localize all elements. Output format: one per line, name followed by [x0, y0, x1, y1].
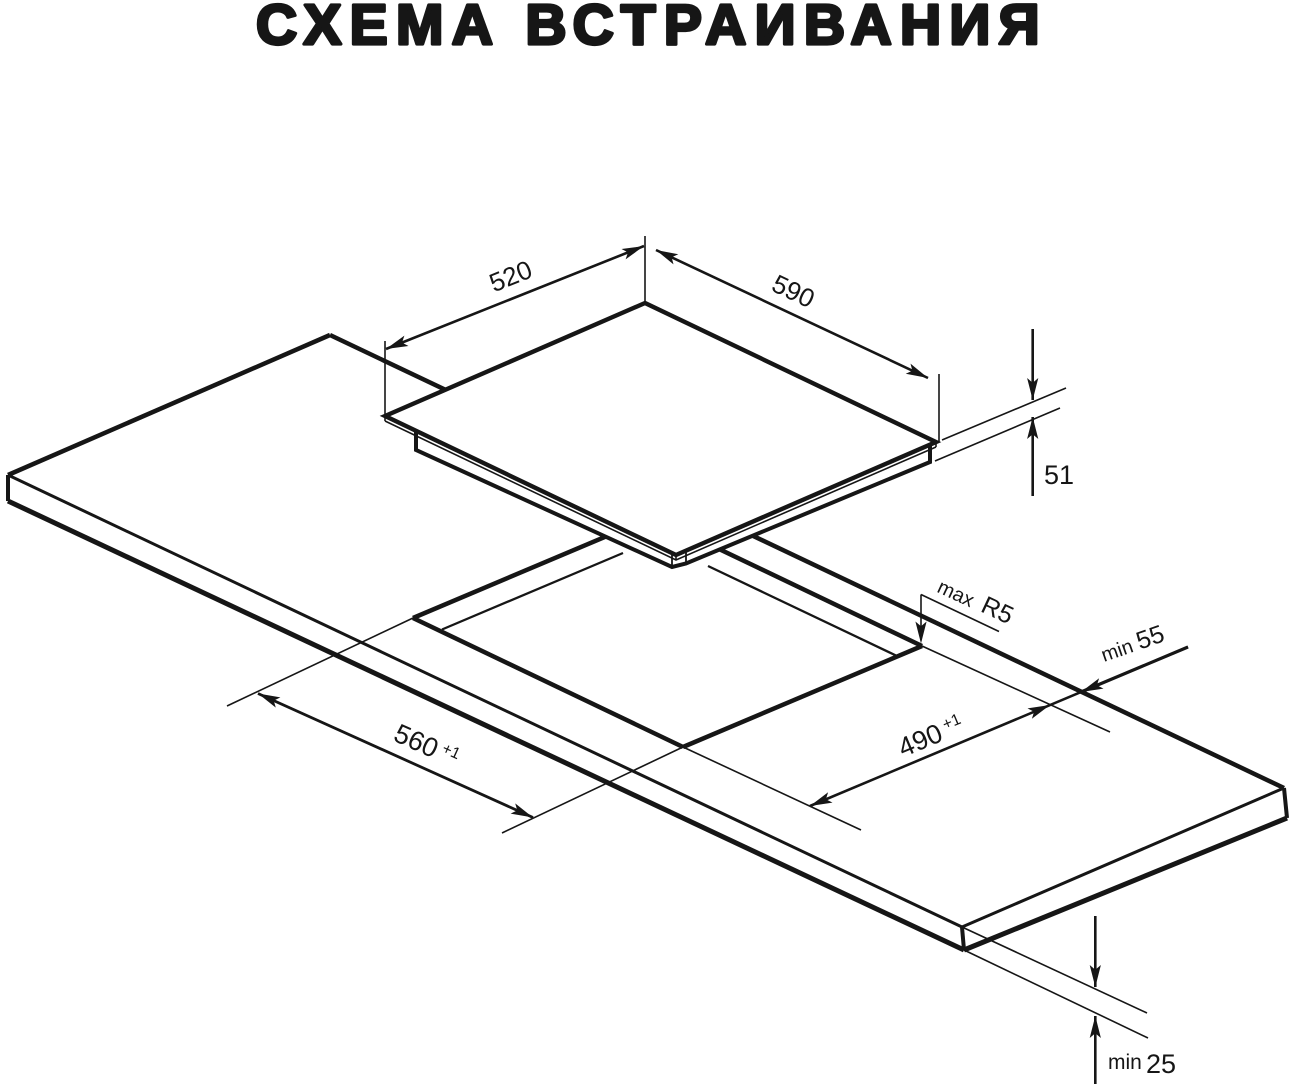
svg-text:СХЕМА ВСТРАИВАНИЯ: СХЕМА ВСТРАИВАНИЯ	[256, 0, 1048, 57]
svg-text:min: min	[1108, 1051, 1142, 1074]
svg-text:25: 25	[1146, 1049, 1176, 1079]
svg-text:51: 51	[1044, 460, 1074, 490]
